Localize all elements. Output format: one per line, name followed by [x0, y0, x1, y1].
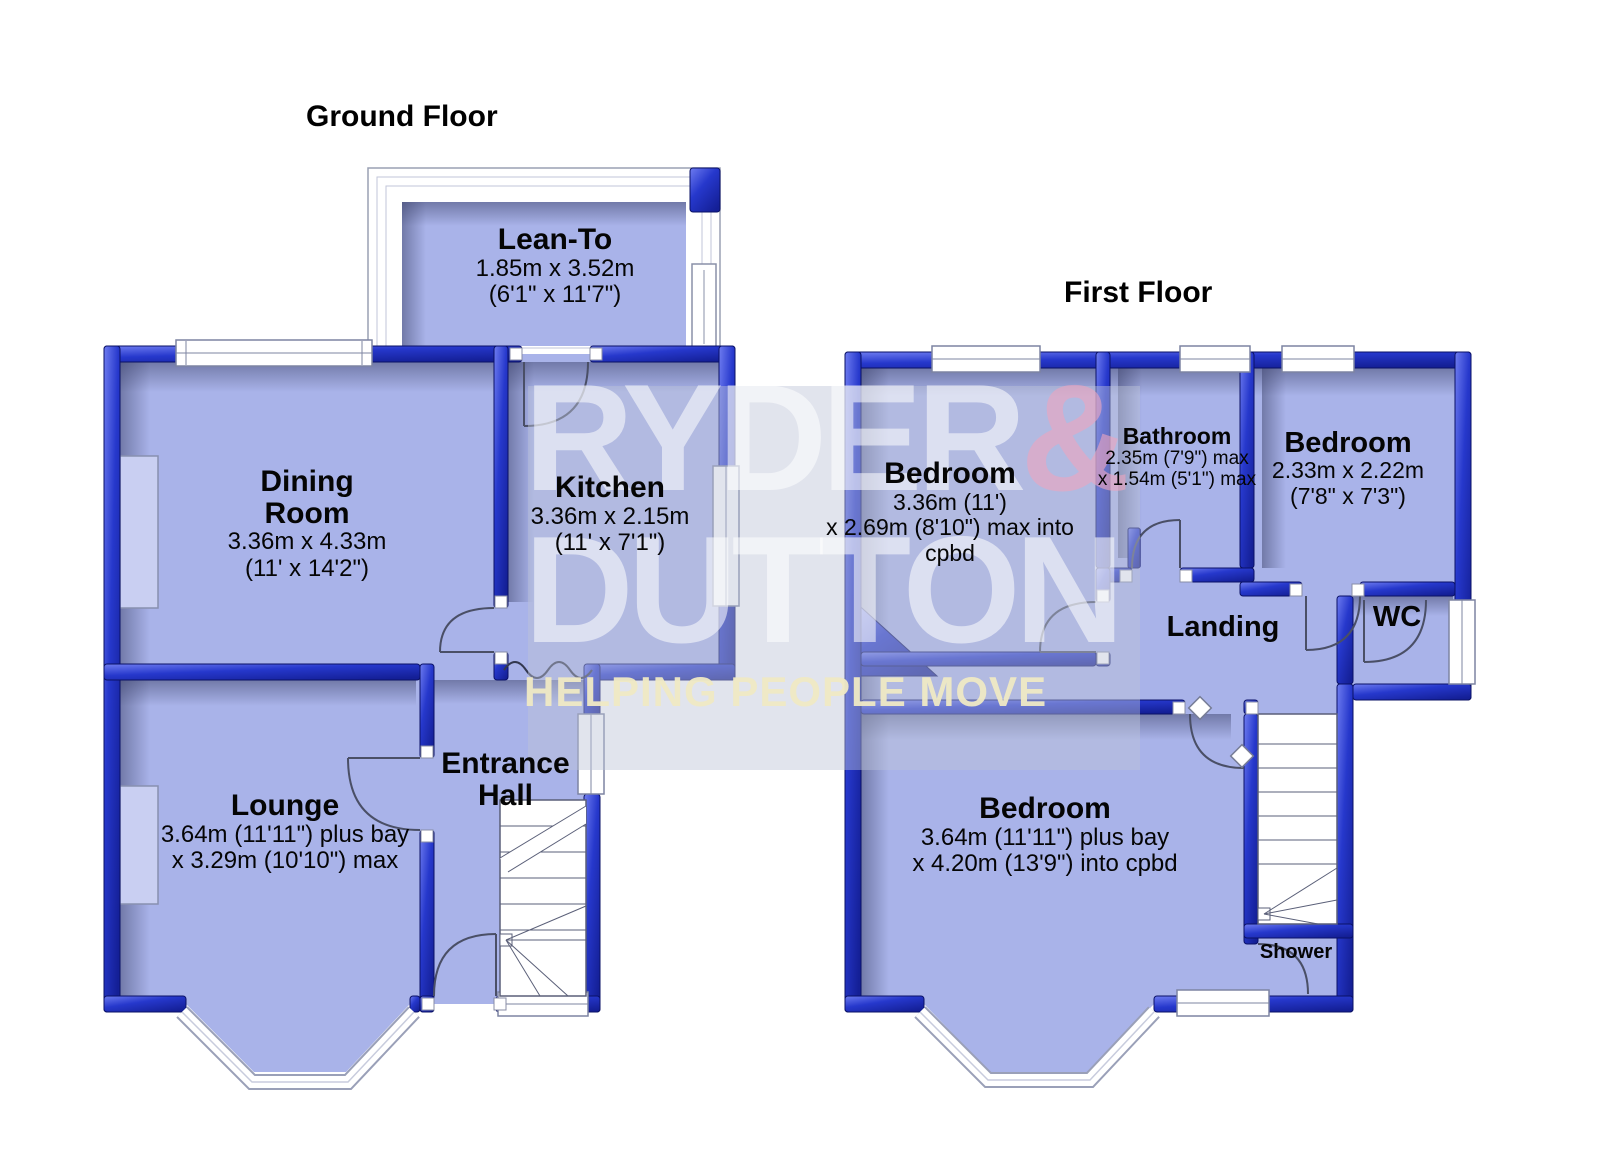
room-label-lounge: Lounge 3.64m (11'11") plus bay x 3.29m (…: [130, 790, 440, 875]
room-label-shower: Shower: [1236, 942, 1356, 963]
room-label-bedroom-main: Bedroom 3.64m (11'11") plus bay x 4.20m …: [880, 793, 1210, 878]
room-label-dining-room: Dining Room 3.36m x 4.33m (11' x 14'2"): [187, 466, 427, 583]
bedroom-rear-name: Bedroom: [1248, 428, 1448, 458]
entrance-hall-name: Entrance Hall: [436, 748, 576, 811]
bathroom-name: Bathroom: [1088, 424, 1266, 448]
ground-floor-stairs: [500, 800, 586, 996]
bedroom-main-dim-line1: 3.64m (11'11") plus bay: [880, 825, 1210, 852]
room-label-entrance-hall: Entrance Hall: [418, 748, 593, 811]
dining-room-dim-metric: 3.36m x 4.33m: [187, 529, 427, 556]
landing-name: Landing: [1138, 612, 1308, 642]
bathroom-dim-line1: 2.35m (7'9") max: [1088, 448, 1266, 469]
wc-name: WC: [1352, 602, 1442, 632]
floorplan-page: RYDER& DUTTON HELPING PEOPLE MOVE Ground…: [0, 0, 1600, 1163]
dining-room-dim-imperial: (11' x 14'2"): [187, 556, 427, 583]
lean-to-dim-metric: 1.85m x 3.52m: [430, 256, 680, 283]
lounge-dim-line1: 3.64m (11'11") plus bay: [130, 822, 440, 849]
lounge-name: Lounge: [130, 790, 440, 822]
bedroom-rear-dim-metric: 2.33m x 2.22m: [1248, 458, 1448, 484]
lean-to-dim-imperial: (6'1" x 11'7"): [430, 282, 680, 309]
ground-floor-title: Ground Floor: [306, 100, 498, 134]
lounge-dim-line2: x 3.29m (10'10") max: [130, 848, 440, 875]
bedroom-front-dim-line1: 3.36m (11'): [800, 490, 1100, 516]
dining-chimney-breast: [120, 456, 158, 608]
bedroom-front-dim-line2: x 2.69m (8'10") max into cpbd: [800, 515, 1100, 567]
room-label-wc: WC: [1352, 602, 1442, 632]
room-label-kitchen: Kitchen 3.36m x 2.15m (11' x 7'1"): [505, 472, 715, 557]
room-label-landing: Landing: [1138, 612, 1308, 642]
shower-name: Shower: [1236, 942, 1356, 963]
room-label-bedroom-rear: Bedroom 2.33m x 2.22m (7'8" x 7'3"): [1248, 428, 1448, 510]
first-floor-stairs: [1258, 714, 1337, 924]
kitchen-dim-imperial: (11' x 7'1"): [505, 530, 715, 557]
room-label-lean-to: Lean-To 1.85m x 3.52m (6'1" x 11'7"): [430, 224, 680, 309]
kitchen-dim-metric: 3.36m x 2.15m: [505, 504, 715, 531]
room-label-bedroom-front: Bedroom 3.36m (11') x 2.69m (8'10") max …: [800, 458, 1100, 567]
bedroom-rear-dim-imperial: (7'8" x 7'3"): [1248, 484, 1448, 510]
first-floor-title: First Floor: [1064, 276, 1212, 310]
lean-to-corner-wall: [690, 168, 720, 212]
bedroom-main-dim-line2: x 4.20m (13'9") into cpbd: [880, 851, 1210, 878]
bedroom-front-name: Bedroom: [800, 458, 1100, 490]
dining-room-name: Dining Room: [222, 466, 392, 529]
bathroom-dim-line2: x 1.54m (5'1") max: [1088, 469, 1266, 490]
bedroom-main-name: Bedroom: [880, 793, 1210, 825]
lean-to-name: Lean-To: [430, 224, 680, 256]
room-label-bathroom: Bathroom 2.35m (7'9") max x 1.54m (5'1")…: [1088, 424, 1266, 491]
kitchen-name: Kitchen: [505, 472, 715, 504]
